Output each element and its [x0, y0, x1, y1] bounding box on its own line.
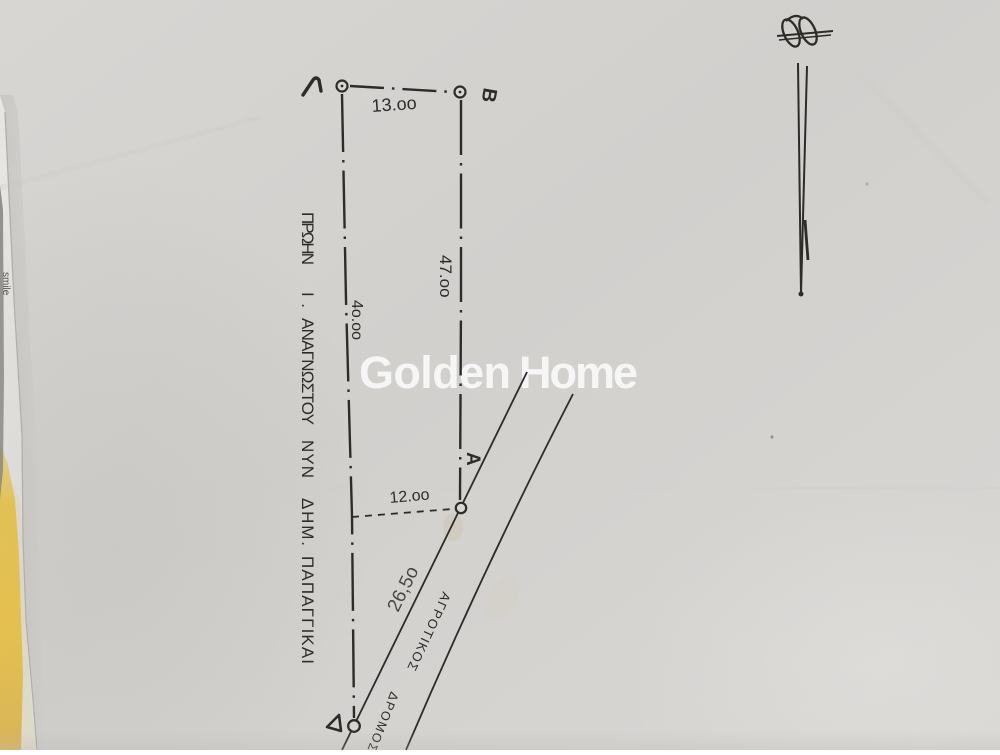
svg-text:ΔΗΜ.: ΔΗΜ.	[298, 498, 317, 546]
svg-text:ΝΥΝ: ΝΥΝ	[298, 440, 317, 478]
svg-text:Golden: Golden	[359, 347, 511, 398]
svg-text:4o.oo: 4o.oo	[348, 300, 365, 340]
svg-text:12.oo: 12.oo	[389, 487, 430, 507]
svg-text:Home: Home	[519, 347, 638, 398]
svg-text:ΠΑΠΑΓΓΙΚΑΙ: ΠΑΠΑΓΓΙΚΑΙ	[298, 556, 317, 664]
svg-text:ΑΝΑΓΝΩΣΤΟΥ: ΑΝΑΓΝΩΣΤΟΥ	[298, 318, 317, 425]
svg-text:13.oo: 13.oo	[371, 93, 417, 116]
svg-text:A: A	[462, 452, 483, 466]
svg-text:47.oo: 47.oo	[436, 255, 455, 298]
svg-text:ΠΡΩΗΝ: ΠΡΩΗΝ	[298, 212, 317, 265]
